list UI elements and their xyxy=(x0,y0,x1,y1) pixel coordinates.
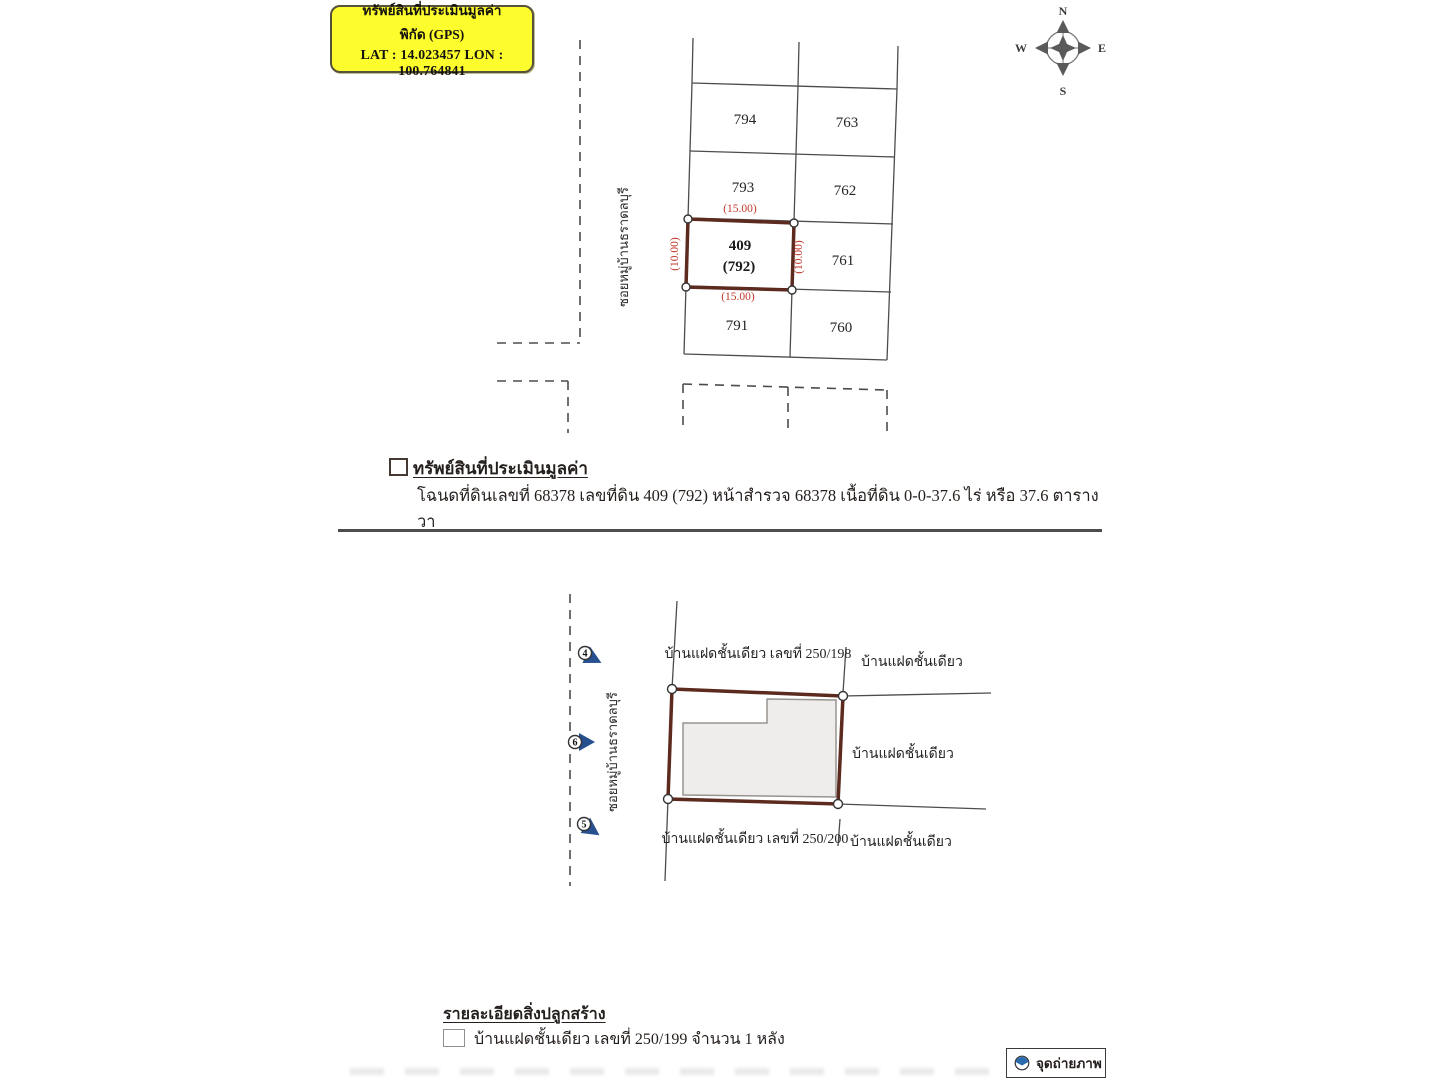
dimension-left: (10.00) xyxy=(669,237,681,271)
compass-north-label: N xyxy=(1059,4,1068,18)
photo-point-6-number: 6 xyxy=(573,738,578,749)
section1-checkbox xyxy=(389,458,408,476)
photo-point-4-number: 4 xyxy=(583,649,588,660)
compass-west-label: W xyxy=(1015,41,1027,55)
top-plan-road-dashed-lines xyxy=(497,40,580,433)
parcel-791-label: 791 xyxy=(726,318,749,334)
photo-point-marker-5-icon: 5 xyxy=(578,817,605,841)
appraisal-document-page: ทรัพย์สินที่ประเมินมูลค่า พิกัด (GPS) LA… xyxy=(0,0,1440,1080)
photo-point-5-number: 5 xyxy=(582,820,587,831)
dimension-bottom: (15.00) xyxy=(721,291,755,303)
neighbor-label-right: บ้านแฝดชั้นเดียว xyxy=(852,743,954,762)
parcel-794-label: 794 xyxy=(734,112,757,128)
parcel-763-label: 763 xyxy=(836,115,859,131)
compass-south-label: S xyxy=(1060,84,1067,98)
building-footprint xyxy=(683,699,836,797)
section2-checkbox xyxy=(443,1029,465,1047)
page-edge-artifact xyxy=(350,1068,1010,1075)
neighbor-label-top: บ้านแฝดชั้นเดียว เลขที่ 250/198 xyxy=(665,643,852,662)
survey-drawing-layer: N S W E xyxy=(0,0,1440,1080)
compass-rose-icon: N S W E xyxy=(1015,4,1106,98)
section2-heading: รายละเอียดสิ่งปลูกสร้าง xyxy=(443,1002,606,1027)
section1-detail-text: โฉนดที่ดินเลขที่ 68378 เลขที่ดิน 409 (79… xyxy=(417,483,1117,535)
photo-point-legend-label: จุดถ่ายภาพ xyxy=(1036,1052,1102,1074)
parcel-762-label: 762 xyxy=(834,183,857,199)
section-divider-line xyxy=(338,529,1102,532)
parcel-793-label: 793 xyxy=(732,180,755,196)
photo-point-legend-icon xyxy=(1014,1055,1030,1071)
dashed-parcel-outlines xyxy=(683,384,887,432)
section1-heading: ทรัพย์สินที่ประเมินมูลค่า xyxy=(413,455,588,482)
subject-parcel-409-outline xyxy=(682,215,798,294)
photo-point-legend-box: จุดถ่ายภาพ xyxy=(1006,1048,1106,1078)
parcel-761-label: 761 xyxy=(832,253,855,269)
neighbor-label-top-right: บ้านแฝดชั้นเดียว xyxy=(861,651,963,670)
parcel-760-label: 760 xyxy=(830,320,853,336)
subject-parcel-old-number: (792) xyxy=(723,259,756,275)
bottom-plan-road-name: ซอยหมู่บ้านธราดลบุรี xyxy=(605,692,621,812)
photo-point-marker-4-icon: 4 xyxy=(579,646,606,669)
dimension-top: (15.00) xyxy=(723,203,757,215)
neighbor-label-bottom-right: บ้านแฝดชั้นเดียว xyxy=(850,831,952,850)
neighbor-label-bottom: บ้านแฝดชั้นเดียว เลขที่ 250/200 xyxy=(662,828,849,847)
photo-point-marker-6-icon: 6 xyxy=(569,733,596,751)
top-plan-road-name: ซอยหมู่บ้านธราดลบุรี xyxy=(616,187,632,307)
subject-parcel-number: 409 xyxy=(729,238,752,254)
dimension-right: (10.00) xyxy=(793,240,805,274)
cadastral-parcel-grid xyxy=(684,38,898,360)
section2-item-text: บ้านแฝดชั้นเดียว เลขที่ 250/199 จำนวน 1 … xyxy=(474,1027,785,1052)
compass-east-label: E xyxy=(1098,41,1106,55)
